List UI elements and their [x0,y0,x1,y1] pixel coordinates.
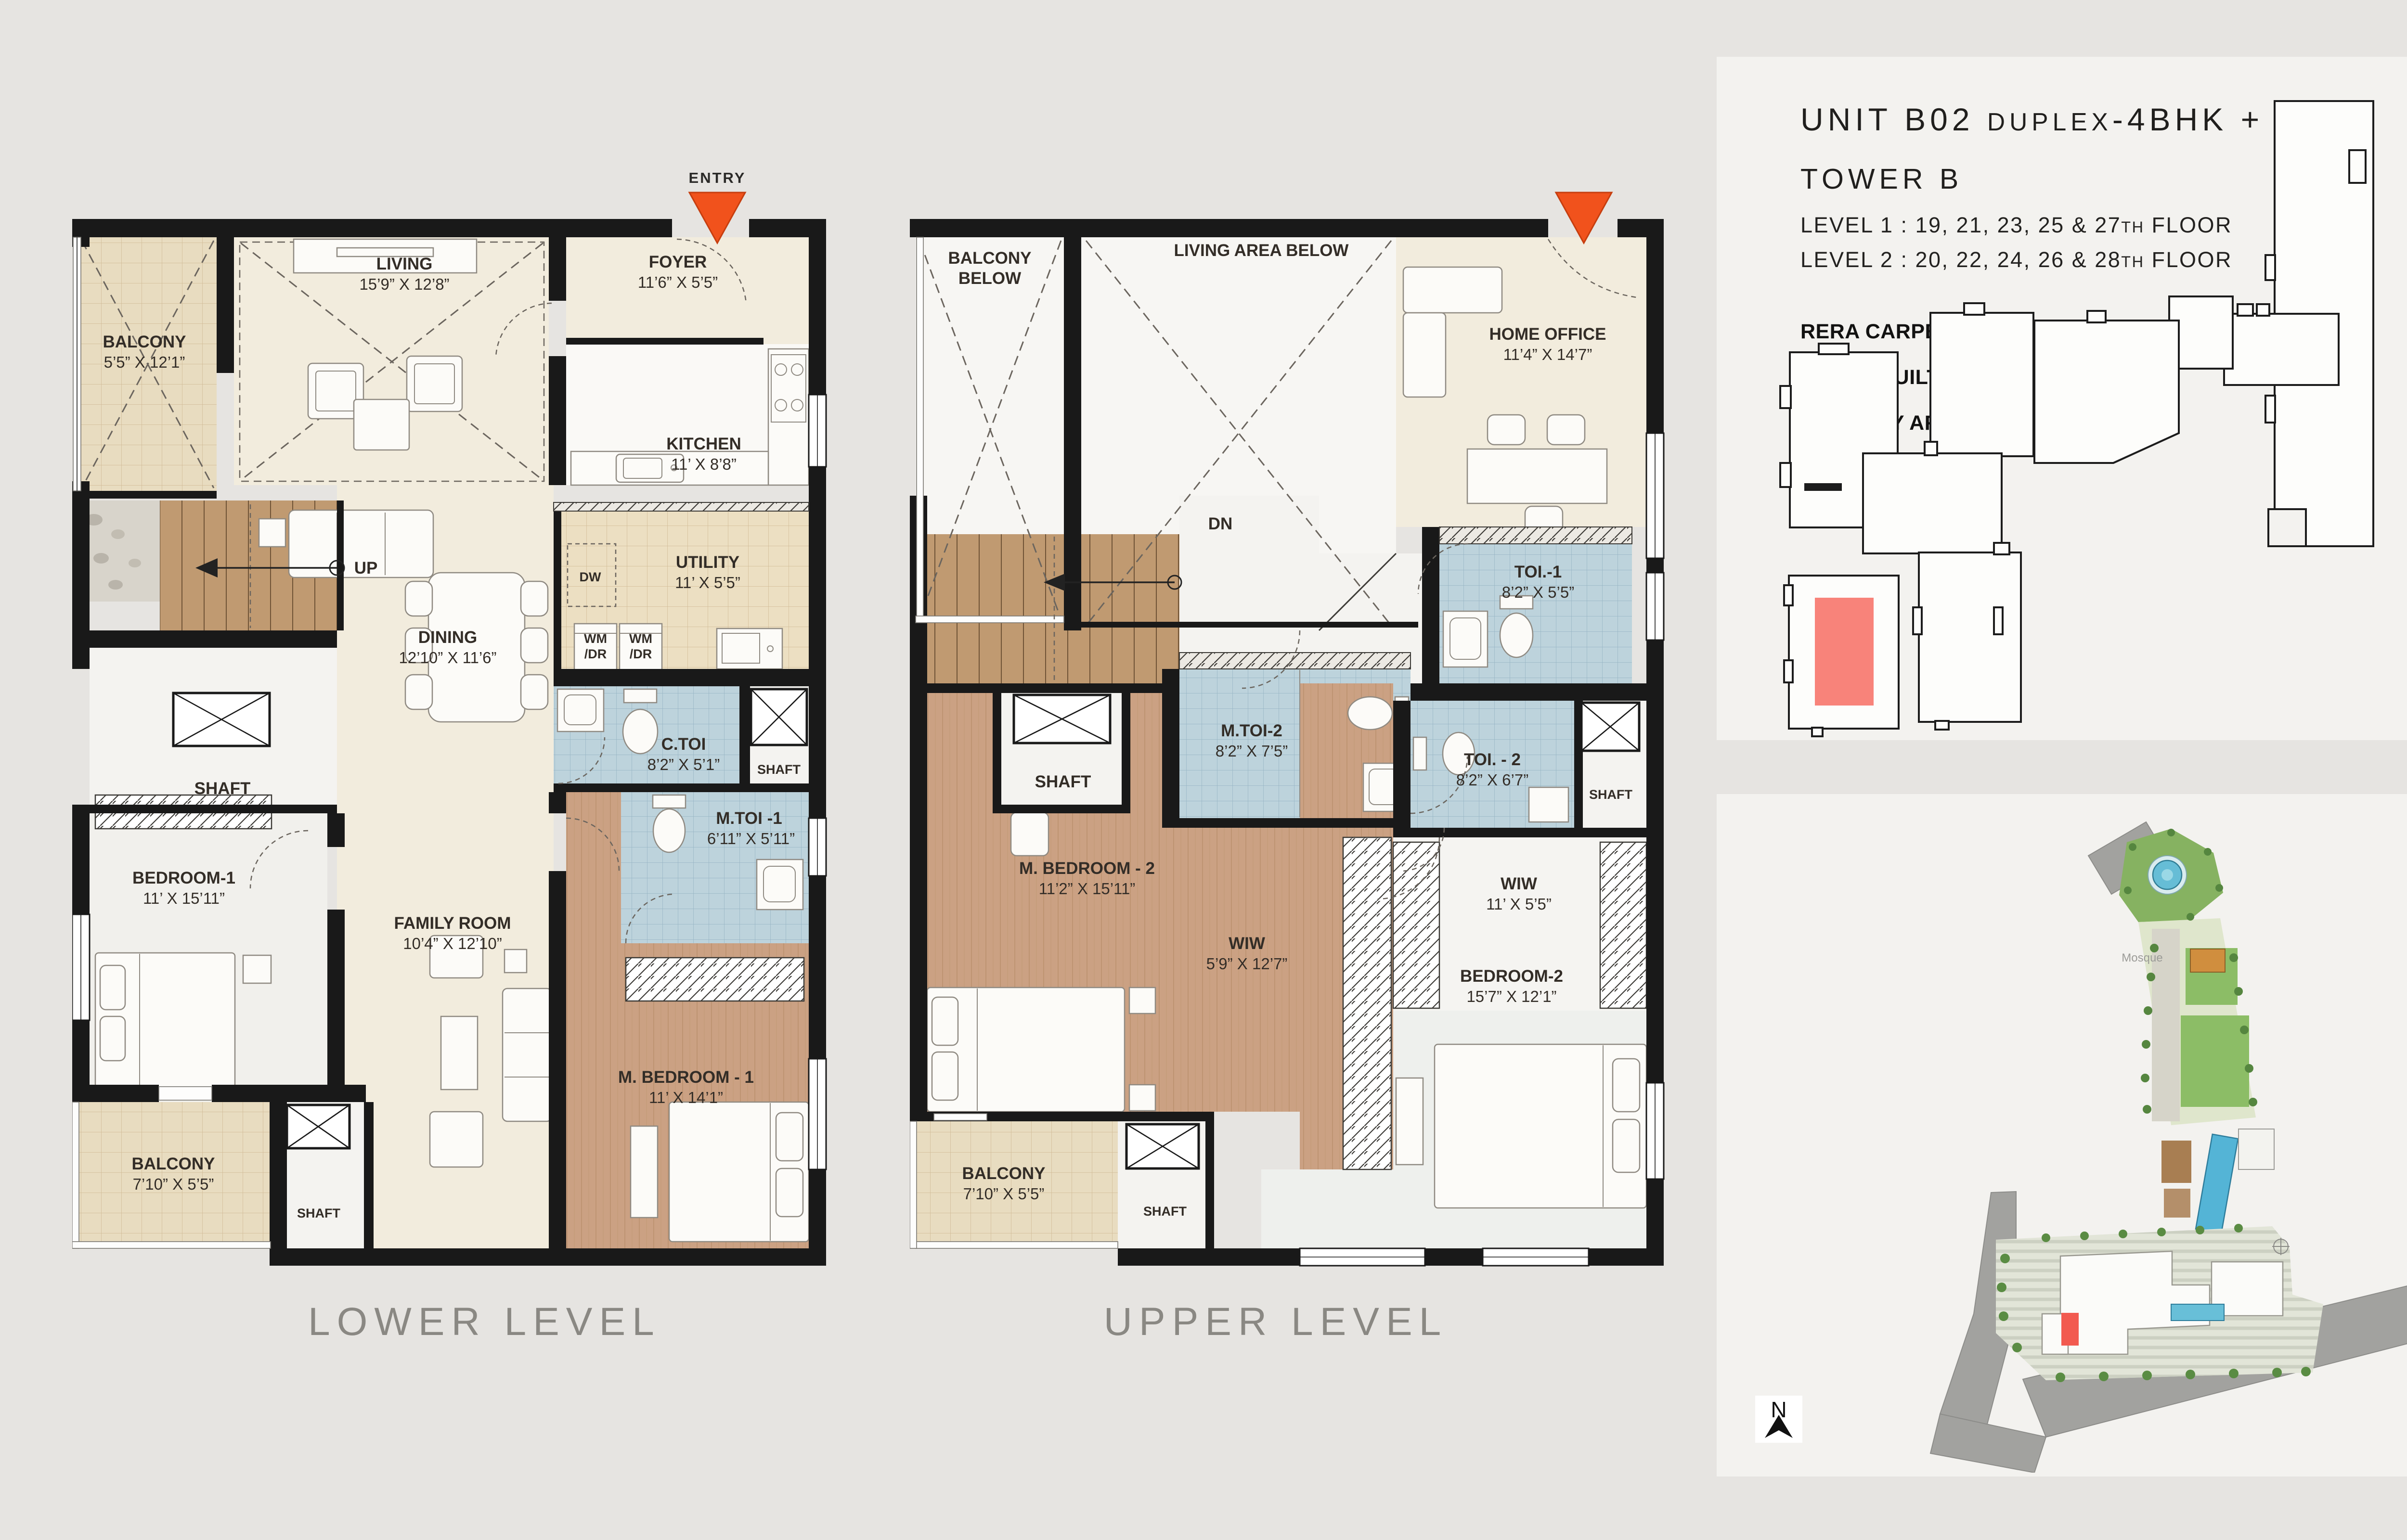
svg-text:12’10” X 11’6”: 12’10” X 11’6” [399,649,496,667]
living-label: LIVING [376,255,433,273]
svg-text:BELOW: BELOW [958,269,1021,288]
upper-balcony-label: BALCONY [962,1164,1045,1183]
svg-text:5’5” X 12’1”: 5’5” X 12’1” [104,353,185,371]
dishwasher-label: DW [580,570,601,584]
dn-label: DN [1208,514,1233,533]
toi1-halfwall [1439,527,1632,544]
svg-text:11’ X 5’5”: 11’ X 5’5” [675,574,740,591]
svg-text:11’ X 8’8”: 11’ X 8’8” [671,455,737,473]
toi1-label: TOI.-1 [1514,563,1562,581]
kitchen-label: KITCHEN [666,435,741,453]
svg-text:8’2” X 7’5”: 8’2” X 7’5” [1216,742,1288,760]
svg-text:8’2” X 6’7”: 8’2” X 6’7” [1456,771,1528,789]
key-plan [1776,96,2393,751]
brochure-page: UNIT B02 DUPLEX-4BHK + F TOWER B LEVEL 1… [0,0,2407,1540]
utility-label: UTILITY [676,553,739,572]
svg-text:11’4” X 14’7”: 11’4” X 14’7” [1503,346,1592,363]
svg-text:SHAFT: SHAFT [1143,1204,1187,1219]
site-landscape: Mosque [1996,829,2323,1382]
svg-text:11’2” X 15’11”: 11’2” X 15’11” [1039,880,1136,898]
svg-text:6’11” X 5’11”: 6’11” X 5’11” [707,830,795,847]
ctoi-label: C.TOI [661,735,706,754]
svg-text:/DR: /DR [584,647,607,661]
wiw2-label: WIW [1501,874,1537,893]
site-highlighted-unit [2061,1313,2079,1346]
svg-text:8’2” X 5’1”: 8’2” X 5’1” [647,756,720,773]
up-label: UP [354,559,378,577]
svg-text:/DR: /DR [630,647,652,661]
upper-shaft-label: SHAFT [1035,772,1091,791]
mtoi2-halfwall [1179,653,1411,669]
toi2-label: TOI. - 2 [1464,750,1521,769]
living-below-label: LIVING AREA BELOW [1174,241,1349,260]
mbedroom2-label: M. BEDROOM - 2 [1019,859,1155,878]
svg-text:11’ X 15’11”: 11’ X 15’11” [143,889,225,907]
svg-text:WM: WM [584,631,607,646]
upper-level-floorplan: BALCONY BELOW LIVING AREA BELOW HOME OFF… [910,164,1666,1270]
shaft-label: SHAFT [194,779,251,798]
lower-level-floorplan: ENTRY LIVING 15’9” X 12’8” FOYER 11’6” X… [72,164,828,1270]
entry-arrow-icon [689,192,745,243]
svg-text:15’7” X 12’1”: 15’7” X 12’1” [1466,988,1556,1005]
foyer-label: FOYER [649,253,707,271]
balcony1-label: BALCONY [103,333,186,351]
lower-level-title: LOWER LEVEL [308,1299,655,1345]
svg-text:11’ X 5’5”: 11’ X 5’5” [1486,895,1552,913]
svg-text:SHAFT: SHAFT [757,762,801,777]
svg-text:WM: WM [629,631,652,646]
balcony-below-label: BALCONY [948,249,1031,268]
wiw1-label: WIW [1229,934,1265,953]
upper-level-title: UPPER LEVEL [1102,1299,1449,1345]
lower-entry: ENTRY [689,169,746,243]
entry-label: ENTRY [689,169,746,186]
north-arrow-icon [1755,1396,1802,1443]
svg-text:7’10” X 5’5”: 7’10” X 5’5” [133,1175,214,1193]
svg-text:11’ X 14’1”: 11’ X 14’1” [649,1089,723,1106]
svg-text:15’9” X 12’8”: 15’9” X 12’8” [359,275,449,293]
svg-text:11’6” X 5’5”: 11’6” X 5’5” [638,273,718,291]
mtoi2-label: M.TOI-2 [1221,721,1282,740]
north-indicator: N [1755,1396,1802,1443]
svg-text:SHAFT: SHAFT [1589,787,1632,802]
svg-text:10’4” X 12’10”: 10’4” X 12’10” [403,935,502,952]
dining-label: DINING [418,628,478,647]
svg-text:8’2” X 5’5”: 8’2” X 5’5” [1502,583,1574,601]
site-plan: Mosque [1902,804,2407,1473]
family-room-label: FAMILY ROOM [394,914,511,933]
svg-text:5’9” X 12’7”: 5’9” X 12’7” [1206,955,1288,973]
upper-entry-arrow-icon [1556,192,1612,243]
home-office-label: HOME OFFICE [1489,325,1606,344]
mosque-label: Mosque [2122,951,2162,964]
bedroom1-label: BEDROOM-1 [132,869,235,887]
balcony2-label: BALCONY [131,1155,215,1173]
svg-text:7’10” X 5’5”: 7’10” X 5’5” [963,1185,1045,1203]
kitchen-halfwall [554,502,809,511]
svg-text:SHAFT: SHAFT [297,1206,340,1220]
mtoi1-label: M.TOI -1 [716,809,782,828]
mbedroom1-label: M. BEDROOM - 1 [618,1068,754,1087]
bedroom2-label: BEDROOM-2 [1460,967,1563,986]
highlighted-unit [1815,598,1874,706]
